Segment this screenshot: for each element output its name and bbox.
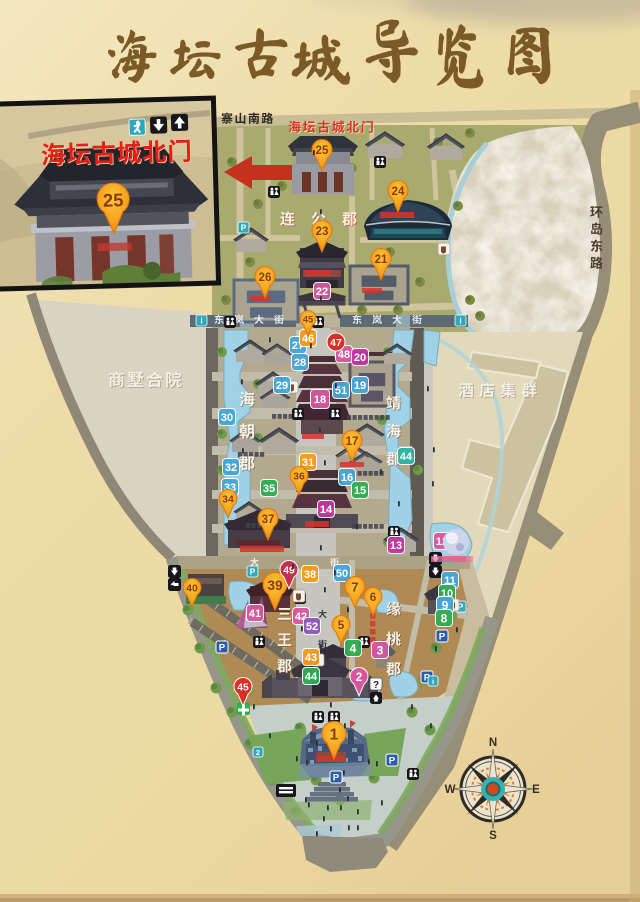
svg-text:4: 4 <box>350 641 357 655</box>
svg-text:38: 38 <box>304 569 316 581</box>
svg-text:37: 37 <box>262 514 275 526</box>
svg-text:P: P <box>241 224 247 233</box>
svg-text:W: W <box>445 784 456 796</box>
svg-text:2: 2 <box>356 671 363 684</box>
svg-text:i: i <box>432 677 434 686</box>
svg-text:i: i <box>200 317 202 326</box>
svg-text:P: P <box>389 756 396 767</box>
svg-text:2: 2 <box>256 748 260 757</box>
svg-text:31: 31 <box>302 457 314 469</box>
svg-text:?: ? <box>373 680 379 691</box>
svg-text:34: 34 <box>222 495 234 506</box>
svg-text:P: P <box>333 773 340 784</box>
svg-text:39: 39 <box>267 578 283 593</box>
svg-text:3: 3 <box>377 643 384 657</box>
svg-text:32: 32 <box>225 462 237 474</box>
svg-text:17: 17 <box>346 436 359 448</box>
svg-text:8: 8 <box>441 611 448 625</box>
svg-text:30: 30 <box>221 412 233 424</box>
svg-text:1: 1 <box>330 727 339 744</box>
svg-text:P: P <box>250 568 256 577</box>
svg-text:S: S <box>489 830 497 842</box>
svg-text:18: 18 <box>314 394 326 406</box>
svg-text:22: 22 <box>316 286 328 298</box>
svg-text:40: 40 <box>186 584 198 595</box>
svg-text:41: 41 <box>249 608 261 620</box>
svg-text:44: 44 <box>400 451 413 463</box>
svg-text:5: 5 <box>338 619 345 632</box>
svg-text:20: 20 <box>354 352 366 364</box>
svg-text:28: 28 <box>294 357 306 369</box>
svg-text:15: 15 <box>354 485 366 497</box>
svg-text:23: 23 <box>316 226 329 238</box>
svg-text:47: 47 <box>330 337 342 349</box>
svg-text:E: E <box>532 784 540 796</box>
svg-text:43: 43 <box>305 652 317 664</box>
svg-text:52: 52 <box>306 621 318 633</box>
svg-text:35: 35 <box>263 483 275 495</box>
svg-text:25: 25 <box>316 145 329 157</box>
svg-text:26: 26 <box>259 272 272 284</box>
svg-text:36: 36 <box>293 472 305 483</box>
svg-text:P: P <box>219 643 226 654</box>
svg-text:19: 19 <box>354 380 366 392</box>
svg-text:44: 44 <box>305 671 318 683</box>
svg-text:21: 21 <box>375 254 388 266</box>
svg-text:25: 25 <box>103 189 124 211</box>
svg-text:6: 6 <box>370 591 377 604</box>
svg-text:P: P <box>439 632 446 643</box>
svg-text:24: 24 <box>392 186 405 198</box>
svg-text:50: 50 <box>336 568 348 580</box>
svg-text:i: i <box>459 317 461 326</box>
svg-text:N: N <box>489 737 497 749</box>
svg-text:7: 7 <box>351 580 358 595</box>
svg-text:45: 45 <box>237 683 249 694</box>
svg-text:29: 29 <box>276 380 288 392</box>
svg-text:16: 16 <box>341 472 353 484</box>
svg-text:48: 48 <box>338 349 350 361</box>
svg-text:13: 13 <box>390 540 402 552</box>
svg-text:14: 14 <box>320 504 333 516</box>
svg-text:45: 45 <box>303 314 313 324</box>
